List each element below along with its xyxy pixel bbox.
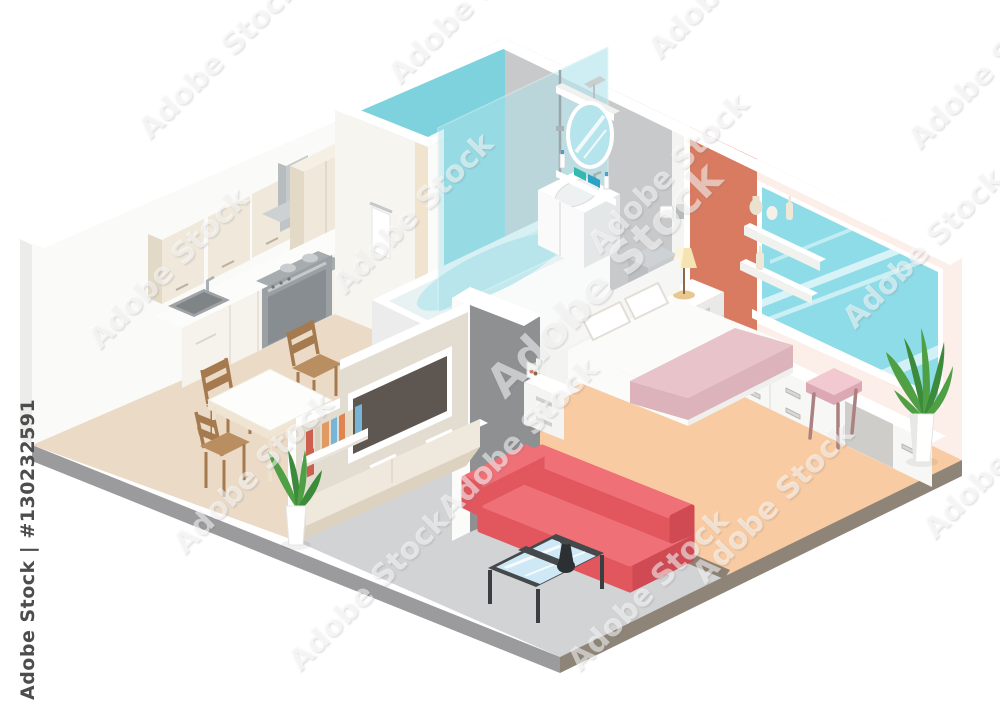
bottle-vase	[756, 252, 764, 270]
bottle-cap	[605, 172, 608, 176]
cosmetic-bottle	[560, 154, 565, 168]
cosmetic-bottle	[604, 176, 609, 189]
burner	[280, 264, 296, 273]
burner	[302, 254, 318, 263]
bottle-vase-neck	[759, 246, 762, 253]
vase-lip	[560, 540, 572, 545]
oven-knob	[279, 281, 282, 284]
plant-pot	[286, 506, 306, 545]
vase-body	[557, 559, 575, 573]
oven-knob	[271, 285, 274, 288]
bottle-vase-neck	[789, 196, 792, 203]
vase	[767, 206, 778, 220]
vase-neck	[753, 196, 760, 203]
stock-image-canvas: Adobe Stock Adobe Stock Adobe Stock Adob…	[0, 0, 1000, 704]
hinge	[556, 126, 564, 131]
watermark-tile: Adobe Stock	[131, 0, 306, 146]
stock-credit-text: Adobe Stock | #130232591	[17, 399, 39, 700]
watermark-tile: Adobe Stock	[641, 0, 816, 66]
watermark-tile: Adobe Stock	[901, 0, 1000, 156]
right-wall-end-face	[962, 251, 977, 460]
isometric-apartment-illustration: Adobe Stock Adobe Stock Adobe Stock Adob…	[0, 0, 1000, 704]
hood-chimney-side	[278, 163, 286, 209]
oven-knob	[287, 277, 290, 280]
bottle-vase	[786, 202, 793, 220]
bottle-cap	[561, 150, 564, 154]
